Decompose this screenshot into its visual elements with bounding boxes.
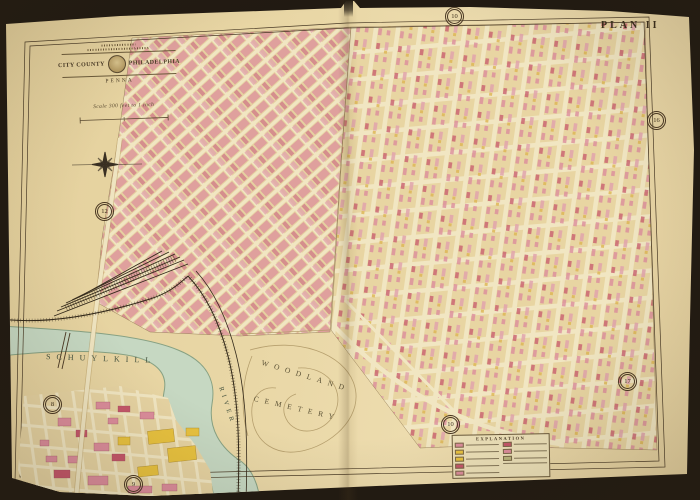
- legend-swatch: [503, 449, 512, 455]
- legend-column-right: [503, 441, 548, 475]
- plate-badge-right: 16: [649, 113, 664, 128]
- plate-badge-bottom-right: 17: [620, 374, 635, 389]
- legend-swatch: [455, 450, 464, 456]
- legend-swatch: [455, 471, 464, 477]
- scale-bar: [78, 113, 170, 123]
- cartouche-title-right: PHILADELPHIA: [129, 59, 180, 67]
- title-cartouche: CITY COUNTY PHILADELPHIA PENNA: [61, 42, 176, 86]
- page-fold-slit: [344, 0, 353, 17]
- plate-badge-river-left: 8: [45, 397, 60, 412]
- legend-column-left: [455, 442, 500, 476]
- plate-badge-bottom-left: 9: [126, 477, 141, 492]
- city-seal-icon: [107, 55, 126, 74]
- plate-badge-top: 10: [447, 9, 462, 24]
- plan-title: PLAN II: [601, 20, 660, 31]
- legend-swatch: [503, 442, 512, 448]
- photo-of-atlas-page: PLAN II CITY COUNTY PHILADELPHIA PENNA S…: [0, 0, 700, 500]
- district-east-grid: [331, 22, 657, 450]
- plate-badge-left: 12: [97, 204, 112, 219]
- cartouche-microtext: [101, 43, 135, 46]
- legend-swatch: [455, 464, 464, 470]
- plate-badge-bottom-center: 10: [443, 417, 458, 432]
- legend-swatch: [455, 457, 464, 463]
- legend-swatch: [455, 443, 464, 449]
- cartouche-title-left: CITY COUNTY: [58, 61, 105, 69]
- scale-block: Scale 300 feet to 1 inch: [76, 101, 173, 128]
- legend-swatch: [503, 456, 512, 462]
- page-fold-shadow: [338, 0, 358, 500]
- legend-box: EXPLANATION: [452, 433, 551, 479]
